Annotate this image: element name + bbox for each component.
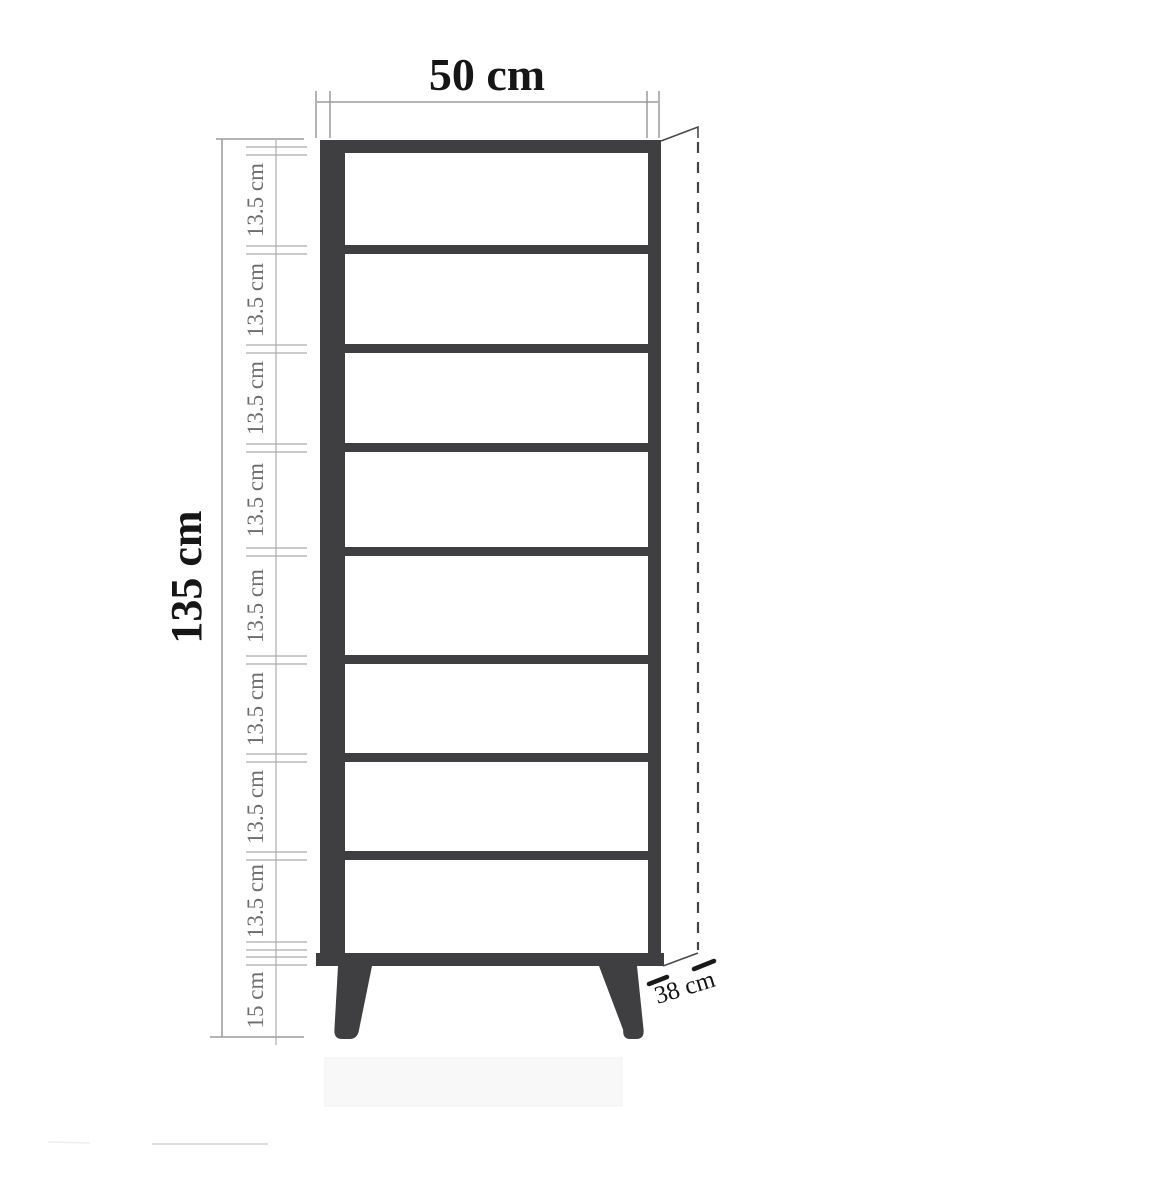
cabinet-left-panel	[320, 140, 345, 953]
furniture-dimension-diagram: 50 cm 135 cm 13.5 cm 13.5 cm 13.5 cm 13.…	[0, 0, 1155, 1200]
diagram-canvas: 50 cm 135 cm 13.5 cm 13.5 cm 13.5 cm 13.…	[0, 0, 1155, 1200]
depth-bottom-edge-line	[663, 953, 698, 966]
cabinet-right-leg	[599, 966, 644, 1039]
height-dimension-label: 135 cm	[162, 510, 211, 643]
cabinet-top-panel	[320, 140, 661, 153]
segment-dim-label-2: 13.5 cm	[243, 263, 268, 337]
depth-dimension-label: 38 cm	[651, 966, 719, 1010]
cabinet-bottom-panel	[316, 953, 664, 966]
segment-dim-label-1: 13.5 cm	[243, 163, 268, 237]
cabinet-right-panel	[648, 140, 661, 953]
segment-dim-label-7: 13.5 cm	[243, 770, 268, 844]
width-dimension-label: 50 cm	[429, 49, 545, 100]
segment-dim-label-3: 13.5 cm	[243, 361, 268, 435]
segment-dim-label-4: 13.5 cm	[243, 463, 268, 537]
segment-dim-label-5: 13.5 cm	[243, 569, 268, 643]
floor-shadow-box	[325, 1058, 622, 1106]
cabinet-shelves	[345, 245, 648, 860]
leg-height-label: 15 cm	[243, 971, 268, 1028]
segment-dim-label-8: 13.5 cm	[243, 864, 268, 938]
cabinet-left-leg	[334, 966, 372, 1039]
artifact-line-1	[48, 1142, 90, 1143]
depth-top-edge-line	[661, 127, 698, 141]
segment-dim-label-6: 13.5 cm	[243, 672, 268, 746]
